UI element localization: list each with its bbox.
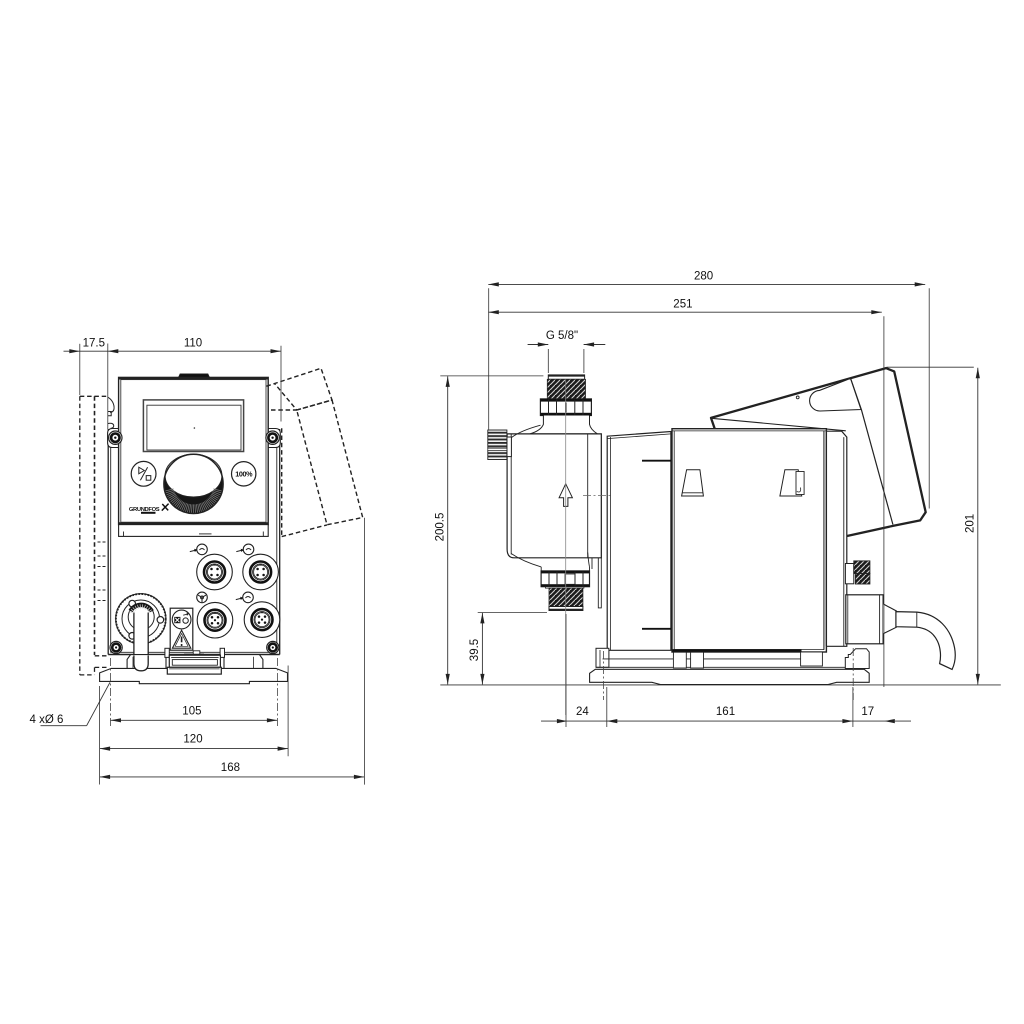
svg-text:110: 110 xyxy=(184,337,202,349)
svg-text:201: 201 xyxy=(964,514,976,533)
svg-text:251: 251 xyxy=(673,298,692,310)
svg-text:280: 280 xyxy=(694,271,713,283)
svg-text:39.5: 39.5 xyxy=(469,639,481,661)
svg-text:105: 105 xyxy=(182,706,201,718)
svg-text:17.5: 17.5 xyxy=(83,337,105,349)
svg-text:168: 168 xyxy=(221,762,240,774)
svg-text:161: 161 xyxy=(716,706,735,718)
svg-text:100%: 100% xyxy=(235,470,253,479)
svg-text:17: 17 xyxy=(861,706,874,718)
svg-text:G 5/8": G 5/8" xyxy=(546,330,578,342)
svg-text:200.5: 200.5 xyxy=(435,513,447,542)
svg-text:4 xØ 6: 4 xØ 6 xyxy=(30,714,64,726)
svg-text:120: 120 xyxy=(183,733,202,745)
svg-text:24: 24 xyxy=(576,706,589,718)
